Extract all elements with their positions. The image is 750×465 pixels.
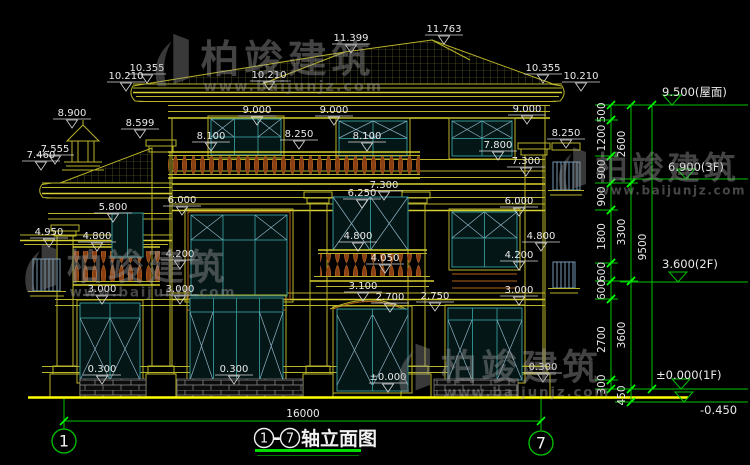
title-underline bbox=[255, 449, 361, 452]
svg-text:1200: 1200 bbox=[596, 125, 608, 152]
watermark-brand: 柏竣建筑 bbox=[200, 38, 375, 83]
svg-text:3.100: 3.100 bbox=[349, 281, 378, 292]
watermark-url: www.baijunjz.com bbox=[70, 285, 237, 301]
bottom-annotation: 16000 1 7 1 - 7 轴立面图 bbox=[52, 399, 553, 456]
svg-text:10.210: 10.210 bbox=[564, 71, 599, 82]
svg-text:±0.000(1F): ±0.000(1F) bbox=[656, 368, 721, 382]
svg-text:8.100: 8.100 bbox=[197, 131, 226, 142]
svg-text:3300: 3300 bbox=[616, 219, 628, 246]
elevation-label: 8.250 bbox=[280, 129, 318, 149]
axis-number: 1 bbox=[59, 432, 69, 451]
svg-text:9.000: 9.000 bbox=[243, 105, 272, 116]
svg-text:-0.450: -0.450 bbox=[700, 403, 737, 417]
steel-railing bbox=[548, 262, 580, 293]
svg-text:4.950: 4.950 bbox=[35, 227, 64, 238]
svg-text:8.599: 8.599 bbox=[126, 118, 155, 129]
level-marker: -0.450 bbox=[620, 392, 748, 417]
axis-number: 7 bbox=[536, 434, 546, 453]
watermark-url: www.baijunjz.com bbox=[444, 385, 611, 401]
svg-text:3.000: 3.000 bbox=[505, 285, 534, 296]
svg-text:7.555: 7.555 bbox=[41, 144, 70, 155]
dimension-chain: 9500 bbox=[636, 101, 659, 393]
balustrade-3f bbox=[168, 152, 420, 178]
brand-logo-icon bbox=[559, 147, 586, 190]
elevation-label: 8.599 bbox=[121, 118, 159, 138]
cad-canvas: 11.76311.39910.21010.35510.21010.35510.2… bbox=[0, 0, 750, 465]
axis-bubble-7: 7 bbox=[529, 431, 553, 455]
title-underline-thin bbox=[257, 455, 359, 456]
window bbox=[449, 118, 515, 159]
window bbox=[449, 209, 520, 288]
svg-text:2.700: 2.700 bbox=[376, 292, 405, 303]
watermark: 柏竣建筑 www.baijunjz.com bbox=[156, 34, 383, 95]
elevation-label: 4.800 bbox=[522, 231, 560, 251]
svg-text:9.500(屋面): 9.500(屋面) bbox=[662, 85, 727, 99]
svg-text:4.800: 4.800 bbox=[527, 231, 556, 242]
watermark: 柏竣建筑 www.baijunjz.com bbox=[559, 147, 746, 197]
elevation-label: 9.000 bbox=[508, 104, 546, 124]
elevation-label: 3.000 bbox=[500, 285, 538, 305]
svg-text:10.355: 10.355 bbox=[526, 63, 561, 74]
svg-text:4.800: 4.800 bbox=[83, 231, 112, 242]
elevation-label: 8.900 bbox=[53, 108, 91, 128]
svg-text:8.900: 8.900 bbox=[58, 108, 87, 119]
title-dash: - bbox=[273, 427, 281, 449]
drawing-title: 1 - 7 轴立面图 bbox=[255, 427, 378, 456]
svg-text:5.800: 5.800 bbox=[99, 202, 128, 213]
svg-text:6.250: 6.250 bbox=[348, 188, 377, 199]
dimension-chain: 260033003600450 bbox=[615, 101, 638, 406]
svg-text:600: 600 bbox=[596, 262, 608, 282]
svg-text:4.200: 4.200 bbox=[505, 250, 534, 261]
elevation-label: 7.300 bbox=[507, 156, 545, 176]
svg-text:2.750: 2.750 bbox=[421, 291, 450, 302]
level-marker: 9.500(屋面) bbox=[620, 85, 748, 105]
elevation-label: 8.250 bbox=[547, 128, 585, 148]
svg-text:1800: 1800 bbox=[596, 223, 608, 250]
svg-text:8.250: 8.250 bbox=[552, 128, 581, 139]
axis-bubble-1: 1 bbox=[52, 429, 76, 453]
svg-text:0.300: 0.300 bbox=[88, 364, 117, 375]
level-marker: ±0.000(1F) bbox=[620, 368, 748, 389]
svg-text:6.000: 6.000 bbox=[505, 196, 534, 207]
svg-text:4.800: 4.800 bbox=[344, 231, 373, 242]
svg-text:7.300: 7.300 bbox=[512, 156, 541, 167]
brand-logo-icon bbox=[156, 34, 189, 86]
dimension-chains: 5001200900900180060060027003002600330036… bbox=[595, 101, 659, 406]
overall-dimension: 16000 bbox=[286, 408, 319, 420]
watermark-brand: 柏竣建筑 bbox=[441, 348, 603, 389]
svg-text:8.250: 8.250 bbox=[285, 129, 314, 140]
elevation-label: 10.210 bbox=[562, 71, 600, 91]
svg-text:3.600(2F): 3.600(2F) bbox=[662, 257, 718, 271]
pilaster bbox=[303, 192, 333, 397]
svg-text:6.000: 6.000 bbox=[168, 195, 197, 206]
svg-text:600: 600 bbox=[596, 280, 608, 300]
svg-text:9500: 9500 bbox=[637, 234, 649, 261]
svg-text:450: 450 bbox=[616, 385, 628, 405]
watermark-url: www.baijunjz.com bbox=[203, 78, 383, 95]
svg-text:9.000: 9.000 bbox=[320, 105, 349, 116]
watermark-brand: 柏竣建筑 bbox=[67, 248, 229, 289]
title-text: 轴立面图 bbox=[301, 427, 377, 450]
svg-text:7.800: 7.800 bbox=[484, 140, 513, 151]
svg-text:3600: 3600 bbox=[616, 322, 628, 349]
title-axis-start: 1 bbox=[260, 432, 268, 447]
svg-text:9.000: 9.000 bbox=[513, 104, 542, 115]
title-axis-end: 7 bbox=[286, 432, 294, 447]
watermark-brand: 柏竣建筑 bbox=[596, 149, 740, 187]
watermark-url: www.baijunjz.com bbox=[598, 183, 746, 197]
svg-text:8.100: 8.100 bbox=[353, 131, 382, 142]
svg-text:0.300: 0.300 bbox=[220, 364, 249, 375]
cad-elevation-drawing: 11.76311.39910.21010.35510.21010.35510.2… bbox=[0, 0, 750, 465]
svg-text:11.763: 11.763 bbox=[427, 24, 462, 35]
svg-text:4.050: 4.050 bbox=[371, 253, 400, 264]
